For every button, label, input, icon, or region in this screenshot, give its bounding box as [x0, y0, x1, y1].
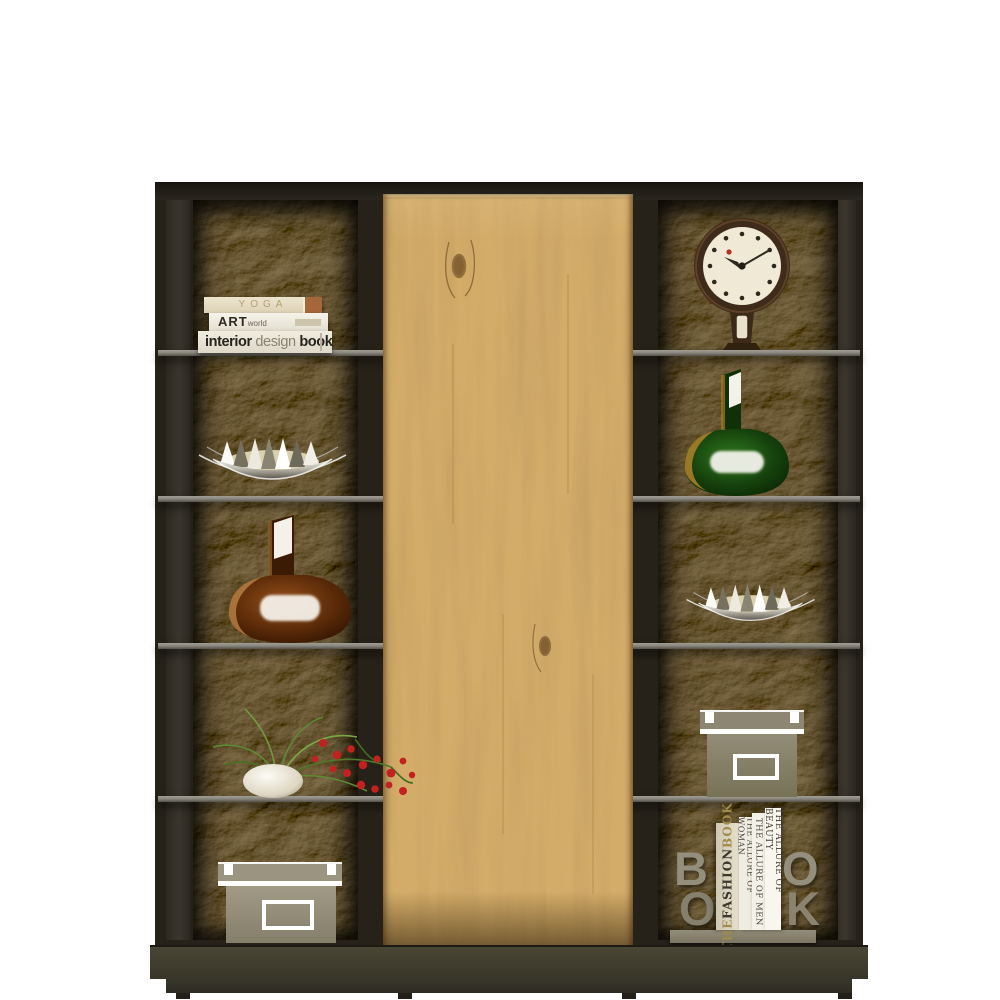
plant-with-berries: [205, 701, 420, 801]
book-idb-word1: interior: [205, 334, 252, 350]
table-clock: [678, 211, 806, 351]
book-spine-allure-beauty: THE ALLURE OF BEAUTY: [765, 808, 781, 930]
plant-pot: [243, 764, 303, 798]
bookend-letter-o-left: O: [679, 888, 716, 930]
book-idb-word2: design: [252, 334, 296, 350]
book-art-subtitle: world: [248, 319, 267, 328]
book-interior-design: interior design book: [198, 331, 332, 353]
spine-fashion-title: FASHION: [721, 848, 735, 919]
silver-lotus-bowl-right: [683, 568, 818, 644]
cabinet-foot: [622, 993, 636, 999]
book-idb-page-edge: [320, 333, 322, 351]
book-yoga: YOGA: [204, 297, 322, 313]
clock-alarm-dot: [726, 249, 731, 254]
cabinet-foot: [176, 993, 190, 999]
book-art-world: ARTworld: [209, 313, 328, 331]
book-art-title: ART: [218, 314, 248, 329]
spine-fashion-book: BOOK: [721, 802, 735, 848]
green-glass-vase: [678, 365, 796, 497]
cabinet-plinth: [166, 977, 852, 993]
silver-lotus-bowl-left: [195, 425, 350, 500]
bookend-letter-k: K: [786, 888, 820, 930]
cabinet-base-bar: [150, 945, 868, 979]
berry-cluster: [312, 739, 415, 795]
book-yoga-title: YOGA: [239, 299, 288, 310]
book-idb-word3: book: [296, 334, 332, 350]
product-photo-stage: YOGA ARTworld interior design book: [0, 0, 1000, 1000]
oak-door-shading: [383, 194, 633, 952]
cabinet-inner-frame-left: [166, 196, 190, 940]
brown-glass-vase: [218, 513, 363, 645]
book-spine-allure-woman: THE ALLURE OF WOMAN: [739, 817, 752, 930]
cabinet-foot: [838, 993, 852, 999]
cabinet-foot: [398, 993, 412, 999]
book-yoga-accent-band: [303, 297, 322, 313]
book-art-publisher-mark: [295, 319, 321, 326]
